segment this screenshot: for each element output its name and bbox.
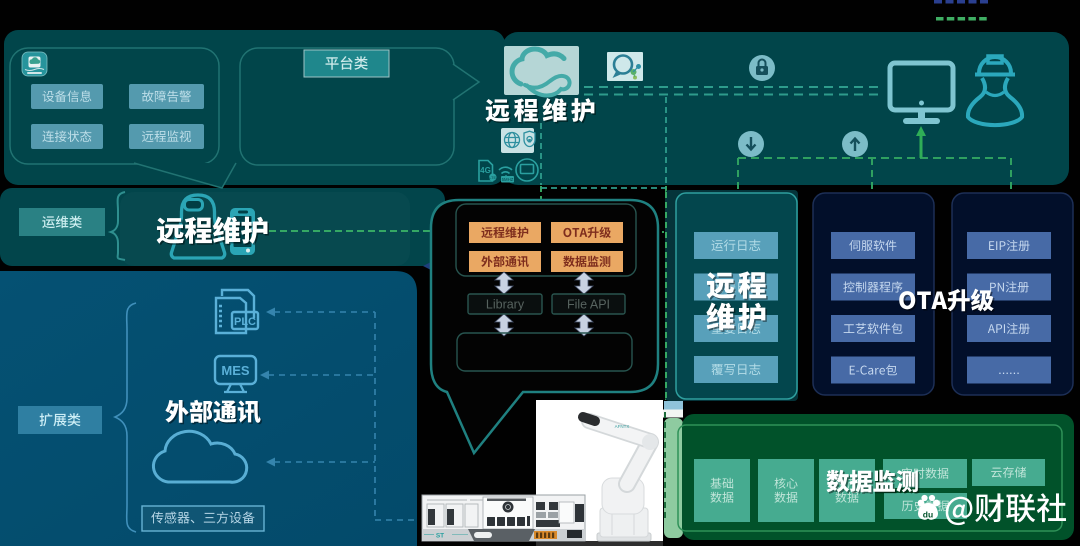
svg-text:File API: File API	[567, 297, 610, 311]
svg-text:du: du	[923, 510, 933, 520]
svg-text:......: ......	[998, 362, 1020, 377]
svg-text:LTE: LTE	[489, 176, 496, 180]
svg-text:5MHZ: 5MHZ	[502, 177, 514, 182]
svg-text:MES: MES	[221, 363, 250, 378]
svg-text:4G: 4G	[480, 166, 491, 175]
svg-text:Library: Library	[486, 297, 525, 311]
svg-text:AFNTX: AFNTX	[615, 424, 630, 429]
svg-text:PLC: PLC	[234, 316, 256, 328]
svg-text:ST: ST	[436, 533, 444, 540]
